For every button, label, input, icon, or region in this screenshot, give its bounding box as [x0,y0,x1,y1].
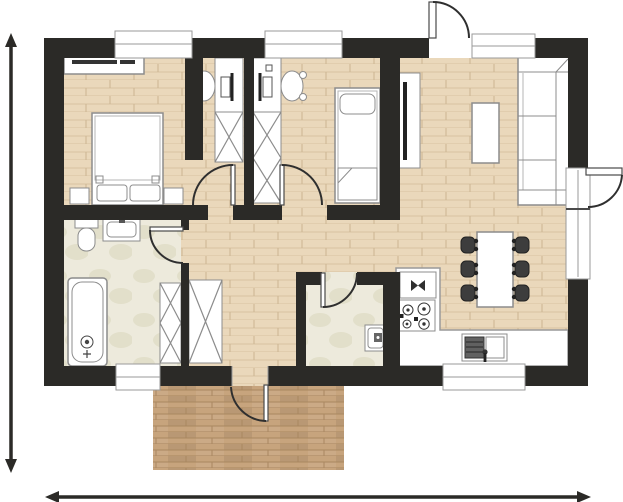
bathroom-cabinet [160,283,181,363]
hallway-furniture [189,280,222,363]
single-bed-pillow [340,94,375,114]
wall-wc-kitchen [383,272,400,366]
wall-bottom [523,366,588,386]
wall-bottom [44,366,118,386]
wall-wc-top [357,272,383,285]
dining-table [477,232,513,307]
toilet-bowl [78,228,95,251]
wc-tile-floor [306,272,383,366]
wall-corridor-wc [296,272,306,366]
kitchen-sink [462,334,507,362]
wall-hall-top [327,205,400,220]
built-in-appliance [400,272,436,298]
shelf-items [72,60,117,64]
wardrobe-b [253,112,281,203]
corner-sofa [518,57,570,205]
bathroom-door-leaf [150,227,183,231]
terrace-door-threshold [230,366,270,386]
coffee-table [472,103,499,163]
desk-a [215,58,243,112]
pillow [130,185,160,201]
bedroom-master-door-leaf [231,165,235,205]
wall-top [190,38,267,58]
terrace-door-leaf [264,385,268,421]
bedroom-second-door-leaf [280,165,284,205]
floor-plan [0,0,623,502]
wall-right [568,38,588,170]
chair-b-armrest [300,72,307,79]
wall-bottom [158,366,232,386]
wall-bathroom-right [181,263,189,366]
entrance-door-leaf [429,2,436,38]
wall-wc-top [306,272,322,285]
tv [403,82,407,160]
nightstand-right [164,188,183,204]
wc-door-leaf [321,273,325,307]
wall-hall-top [233,205,282,220]
right-door-leaf [586,168,622,175]
desk-a-monitor [231,73,234,101]
wall-left [44,38,64,386]
wall-bottom [268,366,445,386]
tv-sideboard [399,73,420,168]
shelf-items [120,60,135,64]
wall-hall-top [64,205,208,220]
desk-b [253,58,281,112]
wall-shelf [64,57,144,74]
nightstand-left [70,188,89,204]
wall-bedroom-partition [185,58,203,160]
wall-bedroom-living [380,58,400,205]
entrance-threshold [429,38,473,58]
wall-top [340,38,430,58]
wc-furniture [365,325,386,351]
floor-plan-canvas [0,0,623,502]
pillow [97,185,127,201]
desk-b-monitor [259,73,262,101]
wall-between-bedrooms [244,58,254,205]
chair-b-armrest [300,94,307,101]
terrace-deck [153,386,344,470]
dining-furniture [461,232,529,307]
